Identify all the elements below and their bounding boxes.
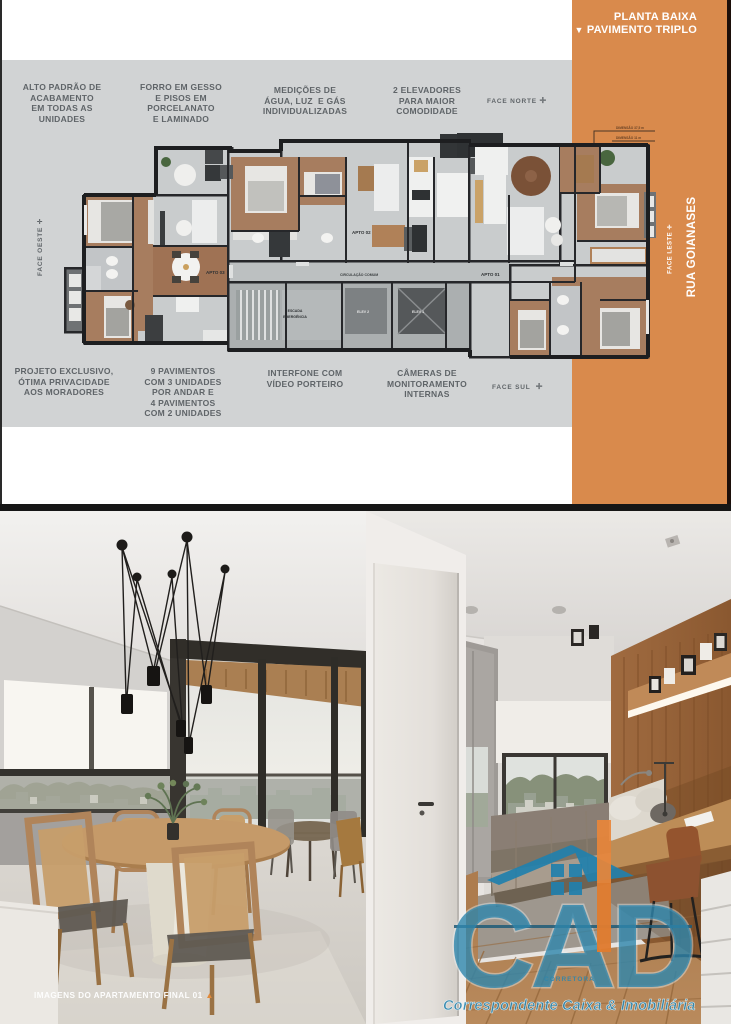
svg-text:DIMENSÃO 11 m: DIMENSÃO 11 m: [616, 135, 641, 140]
svg-text:Correspondente Caixa & Imobili: Correspondente Caixa & Imobiliária: [443, 998, 696, 1014]
svg-text:ELEV 2: ELEV 2: [357, 310, 369, 314]
svg-text:ELEV 1: ELEV 1: [412, 310, 424, 314]
svg-text:CORRETORA: CORRETORA: [544, 976, 595, 983]
svg-text:DIMENSÃO 37,5 m: DIMENSÃO 37,5 m: [616, 125, 644, 130]
svg-text:APTO 03: APTO 03: [206, 270, 225, 275]
svg-text:CIRCULAÇÃO COMUM: CIRCULAÇÃO COMUM: [340, 272, 378, 277]
svg-text:EMERGÊNCIA: EMERGÊNCIA: [283, 314, 307, 319]
svg-text:CAD: CAD: [449, 880, 692, 1013]
svg-text:APTO 02: APTO 02: [352, 230, 371, 235]
svg-text:IMAGENS DO APARTAMENTO FINAL 0: IMAGENS DO APARTAMENTO FINAL 01 ▲: [34, 991, 214, 1000]
svg-text:ESCADA: ESCADA: [288, 309, 303, 313]
svg-text:APTO 01: APTO 01: [481, 272, 500, 277]
